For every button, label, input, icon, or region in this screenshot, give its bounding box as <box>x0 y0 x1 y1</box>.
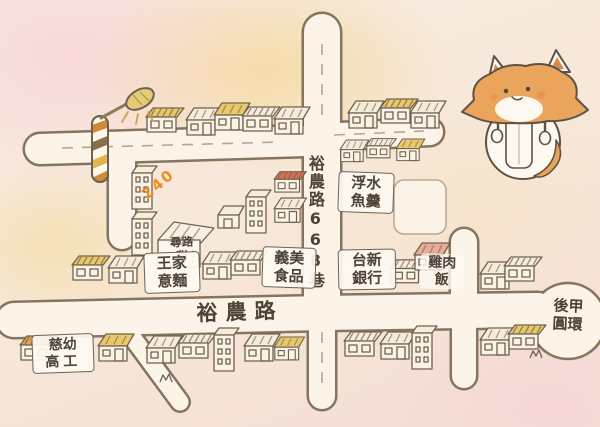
chicken-rice-label: 雞肉 飯 <box>419 253 464 290</box>
taishin-bank-label: 台新 銀行 <box>338 248 397 290</box>
imei-foods-label: 義美 食品 <box>261 246 316 289</box>
hand-drawn-map: 裕農路668巷 裕農路 尋路 甜 240 王家 意麵 義美 食品 台新 銀行 雞… <box>0 0 600 427</box>
roundabout-label: 後甲 圓環 <box>543 297 593 335</box>
fox-head <box>462 50 588 123</box>
school-label: 慈幼 高工 <box>31 333 94 374</box>
fish-soup-label: 浮水 魚羹 <box>337 171 394 214</box>
main-road-label: 裕農路 <box>188 298 293 326</box>
fox-mascot-icon <box>462 50 588 179</box>
large-building-outline <box>394 180 446 234</box>
wang-noodles-label: 王家 意麵 <box>143 251 200 294</box>
doodle-mark <box>530 350 542 358</box>
